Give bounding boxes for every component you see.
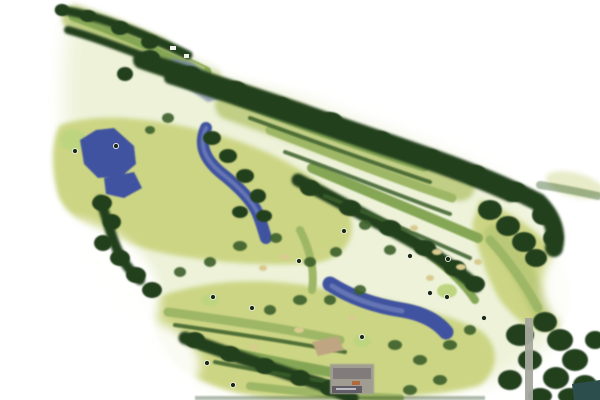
hole-marker bbox=[230, 382, 235, 387]
clubhouse-roof-ridge bbox=[333, 368, 371, 379]
hole-marker bbox=[444, 294, 449, 299]
hole-marker bbox=[445, 256, 450, 261]
cart-path-road bbox=[525, 318, 533, 400]
course-map-svg bbox=[0, 0, 600, 400]
hole-marker bbox=[204, 360, 209, 365]
small-structure-b bbox=[184, 54, 189, 58]
hole-marker bbox=[210, 294, 215, 299]
clubhouse-sign-text-blur bbox=[336, 388, 356, 390]
hole-marker bbox=[481, 315, 486, 320]
bottom-edge-shadow bbox=[195, 396, 485, 400]
hole-marker bbox=[359, 334, 364, 339]
hole-marker bbox=[249, 305, 254, 310]
small-structure-a bbox=[170, 46, 176, 50]
hole-marker bbox=[427, 290, 432, 295]
hole-marker bbox=[72, 148, 77, 153]
golf-course-map bbox=[0, 0, 600, 400]
hole-marker bbox=[341, 228, 346, 233]
hole-marker bbox=[407, 253, 412, 258]
hole-marker bbox=[296, 258, 301, 263]
hole-marker bbox=[113, 143, 118, 148]
clubhouse-detail-orange bbox=[352, 381, 360, 385]
